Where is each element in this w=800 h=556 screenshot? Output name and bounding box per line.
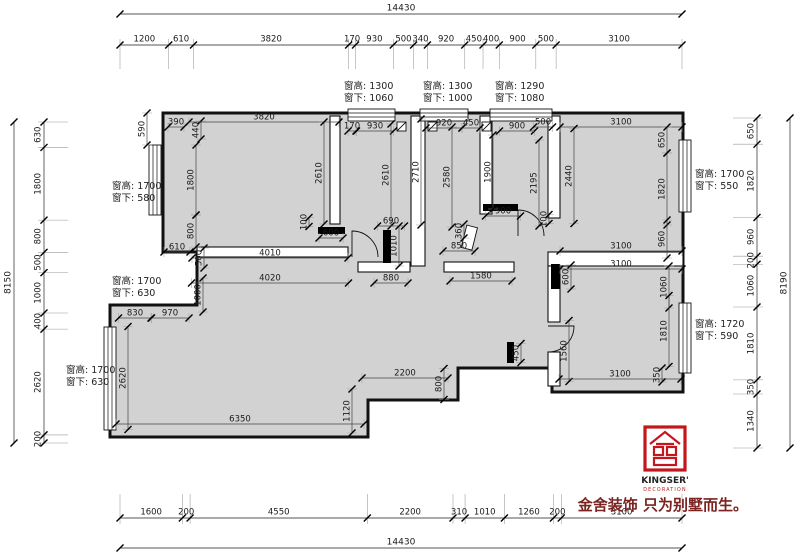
svg-text:600: 600 (323, 229, 339, 239)
svg-text:1600: 1600 (140, 508, 162, 518)
svg-text:1120: 1120 (343, 400, 353, 422)
svg-text:1900: 1900 (484, 161, 494, 183)
svg-text:500: 500 (395, 35, 411, 45)
svg-text:2710: 2710 (412, 161, 422, 183)
svg-text:窗高: 1700: 窗高: 1700 (112, 180, 161, 192)
svg-text:3820: 3820 (260, 35, 282, 45)
svg-text:1060: 1060 (747, 275, 757, 297)
svg-text:610: 610 (173, 35, 189, 45)
svg-text:880: 880 (383, 274, 399, 284)
svg-text:2440: 2440 (565, 165, 575, 187)
svg-text:1260: 1260 (518, 508, 540, 518)
svg-text:8190: 8190 (780, 271, 790, 294)
svg-text:400: 400 (34, 313, 44, 329)
svg-text:3100: 3100 (610, 242, 632, 252)
svg-text:850: 850 (451, 242, 467, 252)
svg-text:1010: 1010 (474, 508, 496, 518)
svg-text:500: 500 (34, 254, 44, 270)
svg-text:2620: 2620 (119, 367, 129, 389)
svg-text:窗高: 1300: 窗高: 1300 (423, 80, 472, 92)
svg-text:630: 630 (34, 127, 44, 143)
svg-text:610: 610 (169, 243, 185, 253)
window (149, 145, 161, 215)
svg-text:800: 800 (435, 376, 445, 392)
svg-text:窗下: 630: 窗下: 630 (66, 376, 109, 388)
svg-text:830: 830 (127, 309, 143, 319)
svg-text:800: 800 (187, 223, 197, 239)
svg-text:1820: 1820 (747, 170, 757, 192)
kingser-logo: KINGSER' DECORATION (641, 427, 689, 493)
svg-text:3100: 3100 (610, 260, 632, 270)
svg-text:14430: 14430 (387, 4, 416, 14)
svg-text:窗高: 1720: 窗高: 1720 (695, 318, 744, 330)
svg-text:4550: 4550 (268, 508, 290, 518)
svg-text:1800: 1800 (34, 173, 44, 195)
wall (330, 116, 340, 224)
svg-text:100: 100 (540, 211, 550, 227)
svg-text:930: 930 (367, 122, 383, 132)
svg-text:170: 170 (344, 35, 360, 45)
svg-text:360: 360 (455, 223, 465, 239)
svg-text:1000: 1000 (194, 284, 204, 306)
window-note: 窗高: 1700窗下: 630 (112, 275, 161, 299)
wall (411, 116, 425, 266)
svg-text:4010: 4010 (259, 249, 281, 259)
svg-text:1560: 1560 (560, 340, 570, 362)
svg-text:500: 500 (535, 118, 551, 128)
svg-text:2610: 2610 (315, 162, 325, 184)
svg-text:14430: 14430 (387, 538, 416, 548)
svg-text:100: 100 (300, 214, 310, 230)
window-note: 窗高: 1700窗下: 550 (695, 168, 744, 192)
window (348, 109, 395, 121)
window-note: 窗高: 1290窗下: 1080 (495, 80, 544, 104)
svg-text:450: 450 (512, 345, 522, 361)
svg-text:4020: 4020 (259, 274, 281, 284)
svg-text:200: 200 (549, 508, 565, 518)
svg-text:3100: 3100 (609, 370, 631, 380)
svg-text:窗下: 1080: 窗下: 1080 (495, 92, 544, 104)
svg-text:340: 340 (412, 35, 428, 45)
svg-text:窗高: 1290: 窗高: 1290 (495, 80, 544, 92)
svg-text:窗下: 1000: 窗下: 1000 (423, 92, 472, 104)
svg-text:960: 960 (747, 229, 757, 245)
svg-text:960: 960 (658, 231, 668, 247)
svg-text:650: 650 (747, 123, 757, 139)
dimension-chain-right: 65018209602001060181035013408190 (733, 115, 794, 452)
window-note: 窗高: 1720窗下: 590 (695, 318, 744, 342)
svg-text:500: 500 (538, 35, 554, 45)
svg-text:310: 310 (451, 508, 467, 518)
svg-text:920: 920 (438, 35, 454, 45)
svg-text:450: 450 (463, 119, 479, 129)
svg-text:1000: 1000 (34, 282, 44, 304)
svg-text:1340: 1340 (747, 410, 757, 432)
svg-text:2200: 2200 (399, 508, 421, 518)
svg-text:450: 450 (466, 35, 482, 45)
svg-text:2620: 2620 (34, 371, 44, 393)
svg-text:窗下: 590: 窗下: 590 (695, 330, 738, 342)
svg-text:690: 690 (383, 217, 399, 227)
svg-text:1810: 1810 (660, 320, 670, 342)
window-note: 窗高: 1300窗下: 1060 (344, 80, 393, 104)
svg-text:窗下: 580: 窗下: 580 (112, 192, 155, 204)
svg-text:390: 390 (168, 118, 184, 128)
svg-text:窗高: 1700: 窗高: 1700 (66, 364, 115, 376)
window-note: 窗高: 1300窗下: 1000 (423, 80, 472, 104)
logo-brand: KINGSER' (641, 476, 689, 486)
svg-text:窗下: 550: 窗下: 550 (695, 180, 738, 192)
solid-wall (551, 264, 560, 289)
svg-text:1800: 1800 (187, 169, 197, 191)
svg-text:窗下: 630: 窗下: 630 (112, 287, 155, 299)
svg-text:8150: 8150 (4, 271, 14, 294)
svg-text:350: 350 (653, 367, 663, 383)
svg-text:350: 350 (747, 379, 757, 395)
svg-text:590: 590 (138, 121, 148, 137)
svg-text:窗下: 1060: 窗下: 1060 (344, 92, 393, 104)
svg-text:2200: 2200 (394, 369, 416, 379)
floor-plan-drawing: 1200610382017093050034092045040090050031… (0, 0, 800, 556)
window (679, 303, 691, 373)
flue-box (482, 122, 491, 131)
svg-text:440: 440 (192, 122, 202, 138)
svg-text:800: 800 (34, 228, 44, 244)
svg-text:650: 650 (658, 132, 668, 148)
svg-text:200: 200 (747, 252, 757, 268)
svg-text:970: 970 (162, 309, 178, 319)
svg-text:1200: 1200 (134, 35, 156, 45)
svg-text:3100: 3100 (608, 35, 630, 45)
svg-text:400: 400 (483, 35, 499, 45)
window (679, 140, 691, 212)
wall (548, 116, 560, 218)
svg-text:3100: 3100 (610, 118, 632, 128)
wall (548, 352, 560, 386)
floor-plan-page: 1200610382017093050034092045040090050031… (0, 0, 800, 556)
logo-frame (645, 427, 685, 470)
interior-dimension: 590 (138, 110, 153, 149)
logo-tagline: 金舍装饰 只为别墅而生。 (577, 496, 748, 514)
logo-sub: DECORATION (643, 487, 687, 493)
svg-text:900: 900 (509, 35, 525, 45)
svg-text:200: 200 (178, 508, 194, 518)
dimension-chain-left: 6301800800500100040026202008150 (4, 119, 69, 448)
svg-text:900: 900 (509, 122, 525, 132)
svg-text:3820: 3820 (253, 113, 275, 123)
wall (444, 262, 514, 272)
svg-text:窗高: 1700: 窗高: 1700 (112, 275, 161, 287)
svg-text:6350: 6350 (229, 415, 251, 425)
svg-text:1010: 1010 (390, 235, 400, 257)
svg-text:窗高: 1700: 窗高: 1700 (695, 168, 744, 180)
flue-box (397, 122, 406, 131)
svg-text:2195: 2195 (530, 172, 540, 194)
svg-text:窗高: 1300: 窗高: 1300 (344, 80, 393, 92)
svg-text:1060: 1060 (660, 276, 670, 298)
svg-text:2610: 2610 (382, 164, 392, 186)
dimension-chain-top: 1200610382017093050034092045040090050031… (117, 4, 686, 70)
svg-text:1810: 1810 (747, 333, 757, 355)
svg-text:200: 200 (34, 431, 44, 447)
svg-text:1580: 1580 (470, 272, 492, 282)
svg-text:930: 930 (366, 35, 382, 45)
svg-text:600: 600 (562, 269, 572, 285)
svg-text:1820: 1820 (658, 178, 668, 200)
svg-text:900: 900 (495, 207, 511, 217)
svg-text:2580: 2580 (443, 166, 453, 188)
